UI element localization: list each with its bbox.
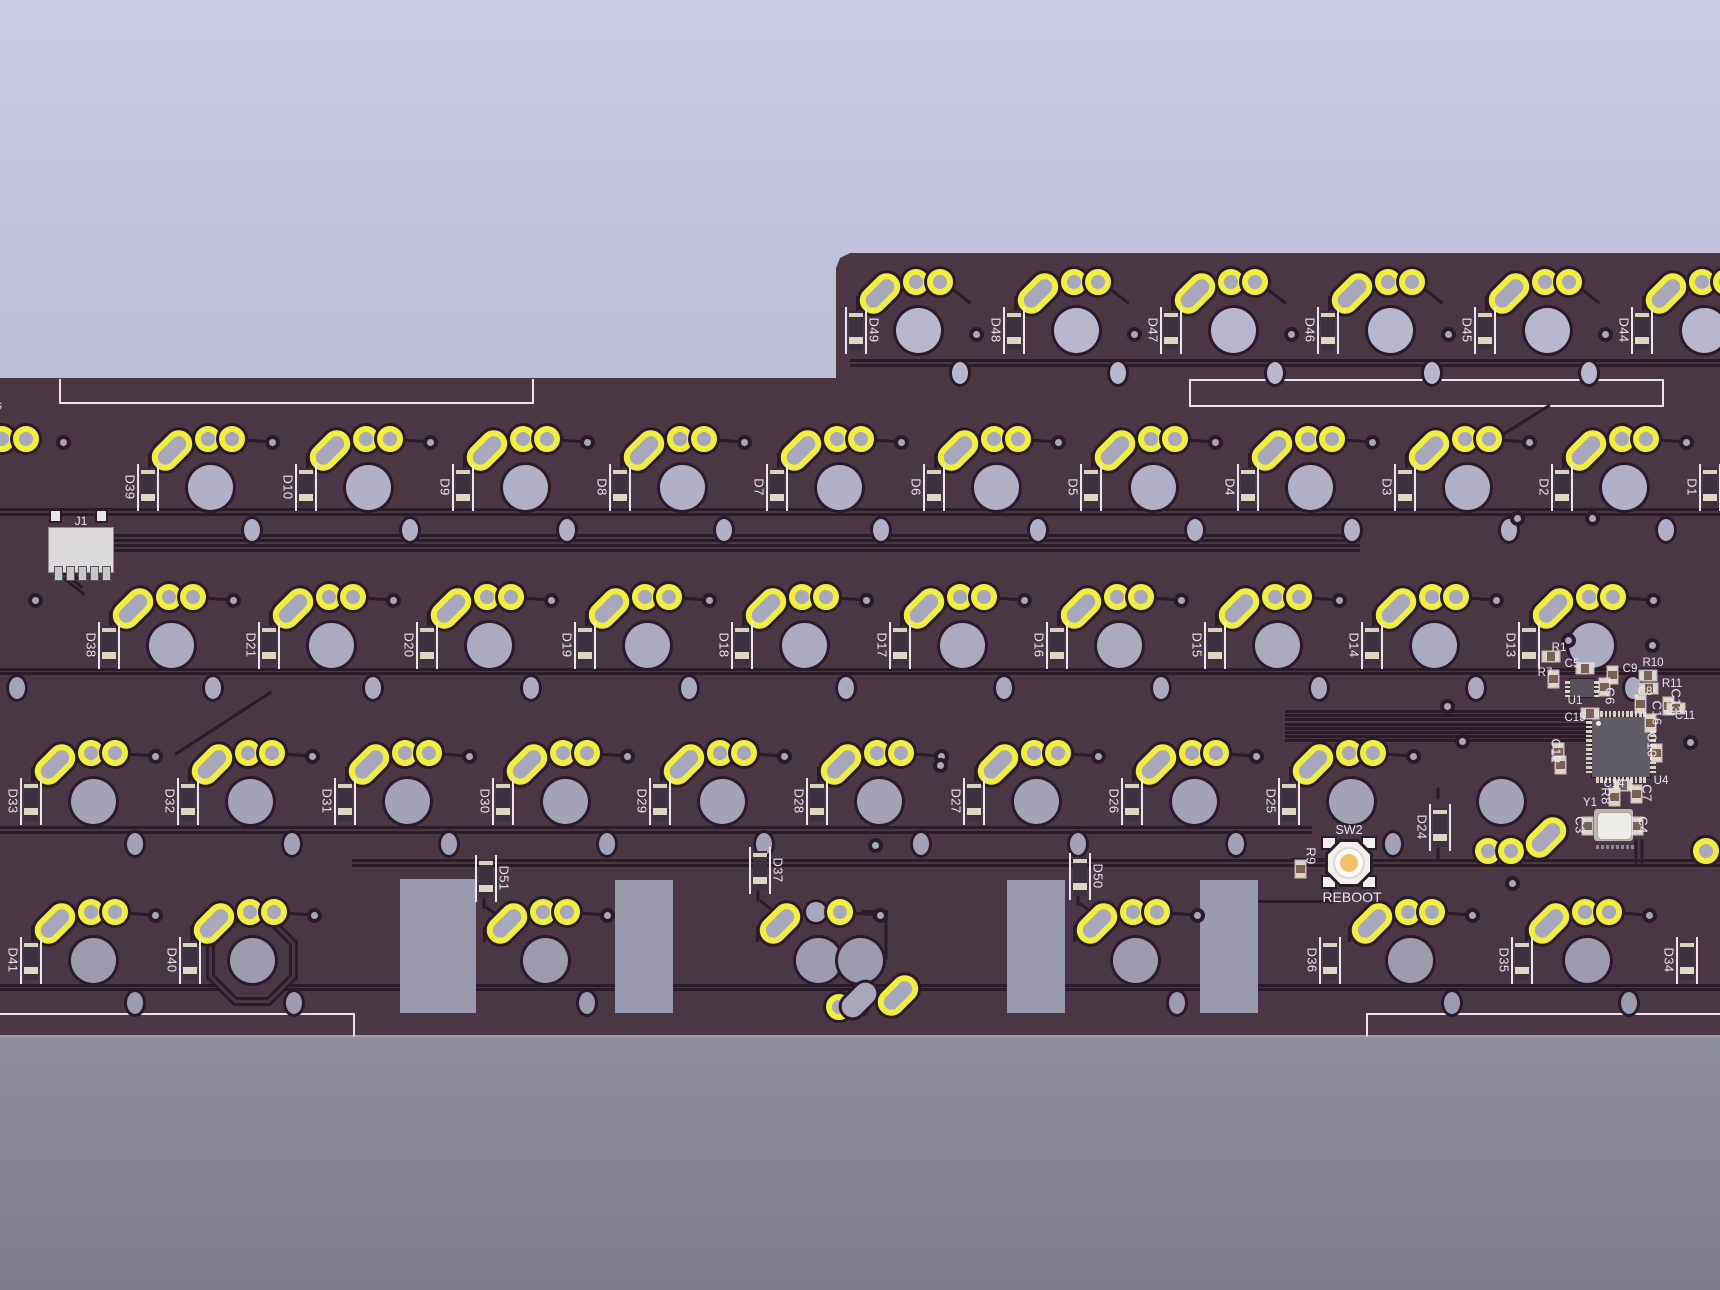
switch-pad (1713, 269, 1720, 295)
diode-D10-label: D10 (281, 474, 296, 499)
key-D45-hole[interactable] (1525, 308, 1570, 353)
via (781, 753, 788, 760)
board-cutout (1007, 880, 1065, 1013)
diode-D32-label: D32 (163, 788, 178, 813)
diode-D45-label: D45 (1460, 317, 1475, 342)
board-cutout (615, 880, 673, 1013)
switch-pad (1572, 899, 1598, 925)
diode-D49-label: D49 (867, 317, 882, 342)
diode-D48-body (1007, 311, 1021, 350)
switch-pad (1085, 269, 1111, 295)
switch-slot-pad (1520, 812, 1572, 864)
diode-D10-body (299, 468, 313, 507)
via (311, 912, 318, 919)
switch-pad (574, 740, 600, 766)
switch-pad (530, 899, 556, 925)
small-hole (441, 833, 457, 855)
switch-pad (707, 740, 733, 766)
switch-pad (1021, 740, 1047, 766)
copper-trace (85, 544, 1360, 547)
key-D33-hole[interactable] (71, 779, 116, 824)
diode-D27-body (967, 782, 981, 821)
switch-pad (416, 740, 442, 766)
key-D2-hole[interactable] (1602, 465, 1647, 510)
via (1459, 738, 1466, 745)
via (1178, 597, 1185, 604)
via (152, 912, 159, 919)
u4-pin (1630, 711, 1633, 717)
copper-trace (1285, 723, 1590, 726)
switch-pad (78, 899, 104, 925)
refdes-C4: C4 (1636, 816, 1651, 833)
key-D44-hole[interactable] (1682, 308, 1720, 353)
via (309, 753, 316, 760)
switch-pad (1419, 899, 1445, 925)
small-hole (1344, 519, 1360, 541)
key-D48-hole[interactable] (1054, 308, 1099, 353)
switch-pad (13, 426, 39, 452)
small-hole (402, 519, 418, 541)
via (1469, 912, 1476, 919)
small-hole (1581, 362, 1597, 384)
switch-pad (1395, 899, 1421, 925)
u4-pin (1586, 771, 1592, 774)
via (466, 753, 473, 760)
key-D14-hole[interactable] (1412, 623, 1457, 668)
diode-D45-body (1478, 311, 1492, 350)
j1-pin (102, 566, 111, 581)
diode-D29-label: D29 (635, 788, 650, 813)
u4-pin (1586, 735, 1592, 738)
diode-D39-label: D39 (123, 474, 138, 499)
via (1650, 597, 1657, 604)
j1-label: J1 (75, 514, 88, 528)
small-hole (244, 519, 260, 541)
via (1683, 439, 1690, 446)
small-hole (1169, 992, 1185, 1014)
diode-D30-label: D30 (478, 788, 493, 813)
diode-D36-body (1323, 941, 1337, 980)
small-hole (286, 992, 302, 1014)
key-D5-hole[interactable] (1131, 465, 1176, 510)
crystal-pad-dot (1611, 845, 1614, 849)
key-D39-hole[interactable] (188, 465, 233, 510)
switch-pad (1689, 269, 1715, 295)
copper-trace (1437, 788, 1440, 800)
switch-pad (1203, 740, 1229, 766)
key-D8-hole[interactable] (660, 465, 705, 510)
diode-D15-body (1208, 626, 1222, 665)
key-D19-hole[interactable] (625, 623, 670, 668)
diode-D7-label: D7 (752, 478, 767, 495)
diode-D17-label: D17 (875, 632, 890, 657)
switch-pad (1443, 584, 1469, 610)
via (1514, 515, 1521, 522)
via (863, 597, 870, 604)
switch-pad (498, 584, 524, 610)
switch-pad (1262, 584, 1288, 610)
via (1336, 597, 1343, 604)
switch-pad (632, 584, 658, 610)
copper-trace (1285, 731, 1590, 734)
refdes-C9: C9 (1623, 663, 1638, 675)
ic-u4-body[interactable] (1592, 717, 1650, 777)
key-D16-hole[interactable] (1097, 623, 1142, 668)
via (1526, 439, 1533, 446)
switch-pad (1005, 426, 1031, 452)
diode-D46-body (1321, 311, 1335, 350)
diode-D26-body (1125, 782, 1139, 821)
switch-pad (219, 426, 245, 452)
switch-pad (1045, 740, 1071, 766)
diode-D24-label: D24 (1415, 814, 1430, 839)
switch-pad (1218, 269, 1244, 295)
diode-D6-label: D6 (909, 478, 924, 495)
board-cutout (1200, 880, 1258, 1013)
small-hole (952, 362, 968, 384)
diode-D29-body (653, 782, 667, 821)
key-D10-hole[interactable] (346, 465, 391, 510)
u4-label: U4 (1654, 775, 1669, 787)
copper-trace (1285, 718, 1590, 721)
small-hole (127, 833, 143, 855)
switch-pad (789, 584, 815, 610)
small-hole (579, 992, 595, 1014)
switch-slot-pad (481, 898, 533, 950)
copper-trace (1285, 727, 1590, 730)
u1-label: U1 (1568, 695, 1583, 707)
copper-trace (352, 864, 1720, 867)
u1-pin (1565, 686, 1570, 689)
small-hole (913, 833, 929, 855)
key-D17-hole[interactable] (940, 623, 985, 668)
key-footprint-hole[interactable] (1113, 938, 1158, 983)
small-hole (1110, 362, 1126, 384)
via (1509, 880, 1516, 887)
key-D47-hole[interactable] (1211, 308, 1256, 353)
copper-trace (0, 831, 1312, 834)
small-hole (681, 677, 697, 699)
diode-D8-label: D8 (595, 478, 610, 495)
via (872, 842, 879, 849)
diode-D13-label: D13 (1504, 632, 1519, 657)
diode-D31-label: D31 (320, 788, 335, 813)
diode-D25-body (1282, 782, 1296, 821)
diode-D36-label: D36 (1305, 947, 1320, 972)
diode-D34-label: D34 (1662, 947, 1677, 972)
pcb-viewer-canvas[interactable]: D49D48D47D46D45D44D39D10D9D8D7D6D5D4D3D2… (0, 0, 1720, 1290)
diode-D4-label: D4 (1223, 478, 1238, 495)
refdes-C16: C16 (1650, 700, 1665, 725)
diode-D35-label: D35 (1497, 947, 1512, 972)
switch-pad (1295, 426, 1321, 452)
key-footprint-hole[interactable] (523, 938, 568, 983)
diode-D9-label: D9 (438, 478, 453, 495)
diode-D41-label: D41 (6, 947, 21, 972)
via (1589, 515, 1596, 522)
key-footprint-hole[interactable] (796, 938, 841, 983)
diode-D20-body (420, 626, 434, 665)
u4-pin (1586, 766, 1592, 769)
switch-slot-pad (1346, 898, 1398, 950)
diode-D38-body (102, 626, 116, 665)
diode-D28-label: D28 (792, 788, 807, 813)
small-hole (1153, 677, 1169, 699)
diode-D4-body (1241, 468, 1255, 507)
via (1649, 642, 1656, 649)
u4-pin (1596, 777, 1599, 783)
small-hole (1228, 833, 1244, 855)
switch-pad (353, 426, 379, 452)
silkscreen-rect (1189, 379, 1664, 407)
via (937, 762, 944, 769)
u1-pin (1565, 681, 1570, 684)
key-D35-hole[interactable] (1565, 938, 1610, 983)
y1-label: Y1 (1583, 797, 1597, 809)
diode-D49-body (849, 311, 863, 350)
switch-pad (156, 584, 182, 610)
diode-D14-label: D14 (1347, 632, 1362, 657)
key-D6-hole[interactable] (974, 465, 1019, 510)
diode-D44-label: D44 (1617, 317, 1632, 342)
via (1131, 331, 1138, 338)
diode-D27-label: D27 (949, 788, 964, 813)
u4-pin (1622, 711, 1625, 717)
diode-D47-body (1164, 311, 1178, 350)
via (60, 439, 67, 446)
diode-D39-body (141, 468, 155, 507)
small-hole (1385, 833, 1401, 855)
key-D32-hole[interactable] (228, 779, 273, 824)
key-footprint-hole[interactable] (838, 938, 883, 983)
diode-D33-label: D33 (6, 788, 21, 813)
refdes-R1: R1 (1552, 642, 1567, 654)
switch-pad (259, 740, 285, 766)
key-D18-hole[interactable] (782, 623, 827, 668)
passive-component[interactable] (1577, 664, 1593, 673)
crystal-pad-dot (1626, 845, 1629, 849)
via (877, 912, 884, 919)
switch-pad (971, 584, 997, 610)
diode-D50-body (1073, 857, 1087, 896)
switch-pad (392, 740, 418, 766)
via (1212, 439, 1219, 446)
passive-component[interactable] (1640, 671, 1656, 680)
u4-pin (1600, 777, 1603, 783)
via (548, 597, 555, 604)
refdes-C5: C5 (1565, 658, 1580, 670)
small-hole (559, 519, 575, 541)
via (1444, 703, 1451, 710)
diode-D30-body (496, 782, 510, 821)
refdes-C12: C12 (1549, 738, 1564, 763)
diode-D33-body (24, 782, 38, 821)
via (741, 439, 748, 446)
small-hole (873, 519, 889, 541)
small-hole (1311, 677, 1327, 699)
passive-component[interactable] (1608, 667, 1617, 683)
switch-pad (1600, 584, 1626, 610)
diode-D48-label: D48 (989, 317, 1004, 342)
diode-D3-label: D3 (1380, 478, 1395, 495)
refdes-C15: C15 (1564, 712, 1585, 724)
switch-pad (903, 269, 929, 295)
switch-slot-pad (872, 970, 924, 1022)
u4-pin (1586, 739, 1592, 742)
key-D49-hole[interactable] (896, 308, 941, 353)
switch-pad (1286, 584, 1312, 610)
key-D3-hole[interactable] (1445, 465, 1490, 510)
u1-pin (1594, 690, 1599, 693)
diode-D46-label: D46 (1303, 317, 1318, 342)
switch-pad (1242, 269, 1268, 295)
j1-pin (54, 566, 63, 581)
u4-pin (1650, 766, 1656, 769)
switch-pad (947, 584, 973, 610)
switch-pad (261, 899, 287, 925)
copper-trace (885, 916, 888, 960)
small-hole (1424, 362, 1440, 384)
switch-pad (1532, 269, 1558, 295)
u4-pin (1586, 753, 1592, 756)
u1-pin (1594, 695, 1599, 698)
small-hole (523, 677, 539, 699)
via (152, 753, 159, 760)
j1-pad (97, 511, 106, 521)
switch-pad (888, 740, 914, 766)
switch-pad (1498, 838, 1524, 864)
refdes-C11: C11 (1675, 710, 1695, 722)
diode-D16-body (1050, 626, 1064, 665)
switch-pad (827, 899, 853, 925)
via (1288, 331, 1295, 338)
u4-pin (1626, 711, 1629, 717)
diode-D51-label: D51 (497, 865, 512, 890)
key-D41-hole[interactable] (71, 938, 116, 983)
j1-pad (51, 511, 60, 521)
diode-D19-body (578, 626, 592, 665)
key-D38-hole[interactable] (149, 623, 194, 668)
j1-pin (66, 566, 75, 581)
u1-pin (1565, 690, 1570, 693)
u4-pin (1586, 744, 1592, 747)
copper-trace (0, 513, 1720, 516)
copper-trace (1641, 840, 1644, 864)
small-hole (284, 833, 300, 855)
switch-pad (813, 584, 839, 610)
switch-pad (1609, 426, 1635, 452)
key-D27-hole[interactable] (1014, 779, 1059, 824)
switch-pad (824, 426, 850, 452)
u4-pin (1605, 711, 1608, 717)
u4-pin (1586, 726, 1592, 729)
key-D46-hole[interactable] (1368, 308, 1413, 353)
small-hole (716, 519, 732, 541)
key-D4-hole[interactable] (1288, 465, 1333, 510)
diode-D15-label: D15 (1190, 632, 1205, 657)
via (973, 331, 980, 338)
via (390, 597, 397, 604)
copper-trace (85, 549, 1360, 552)
silkscreen-line (353, 1013, 355, 1037)
refdes-C7: C7 (1640, 784, 1655, 801)
diode-D14-body (1365, 626, 1379, 665)
u4-pin (1650, 762, 1656, 765)
switch-pad (1693, 838, 1719, 864)
small-hole (599, 833, 615, 855)
u4-pin (1609, 711, 1612, 717)
diode-D37-label: D37 (771, 857, 786, 882)
diode-D51-body (479, 859, 493, 898)
key-D26-hole[interactable] (1172, 779, 1217, 824)
diode-D21-body (262, 626, 276, 665)
small-hole (1468, 677, 1484, 699)
key-D7-hole[interactable] (817, 465, 862, 510)
u4-pin (1613, 711, 1616, 717)
diode-D5-label: D5 (1066, 478, 1081, 495)
via (604, 912, 611, 919)
refdes-C3: C3 (1573, 816, 1588, 833)
diode-D2-label: D2 (1537, 478, 1552, 495)
j1-pin (78, 566, 87, 581)
small-hole (1621, 992, 1637, 1014)
switch-pad (1128, 584, 1154, 610)
key-footprint-hole[interactable] (1479, 779, 1524, 824)
u4-pin (1586, 757, 1592, 760)
via (1021, 597, 1028, 604)
via (1410, 753, 1417, 760)
passive-component[interactable] (1636, 696, 1645, 712)
u4-pin1-dot (1596, 721, 1601, 726)
key-D25-hole[interactable] (1329, 779, 1374, 824)
sw2-plunger-center (1340, 854, 1358, 872)
key-D31-hole[interactable] (385, 779, 430, 824)
diode-D24-body (1433, 808, 1447, 847)
small-hole (838, 677, 854, 699)
diode-D21-label: D21 (244, 632, 259, 657)
key-D21-hole[interactable] (309, 623, 354, 668)
key-D30-hole[interactable] (543, 779, 588, 824)
via (1445, 331, 1452, 338)
u4-pin (1586, 730, 1592, 733)
key-D28-hole[interactable] (857, 779, 902, 824)
crystal-y1-body[interactable] (1597, 812, 1632, 840)
copper-trace (0, 672, 1720, 675)
switch-pad (1476, 426, 1502, 452)
switch-pad (981, 426, 1007, 452)
diode-D2-body (1555, 468, 1569, 507)
via (1194, 912, 1201, 919)
key-D29-hole[interactable] (700, 779, 745, 824)
u4-pin (1618, 711, 1621, 717)
key-D36-hole[interactable] (1388, 938, 1433, 983)
diode-D1-label: D1 (1685, 478, 1700, 495)
key-D20-hole[interactable] (467, 623, 512, 668)
refdes-R10: R10 (1642, 657, 1663, 669)
refdes-R7: R7 (1538, 667, 1553, 679)
switch-pad (1375, 269, 1401, 295)
switch-pad (1360, 740, 1386, 766)
diode-D19-label: D19 (560, 632, 575, 657)
switch-pad (1179, 740, 1205, 766)
key-D40-hole[interactable] (230, 938, 275, 983)
pcb-board[interactable]: D49D48D47D46D45D44D39D10D9D8D7D6D5D4D3D2… (0, 0, 1720, 1290)
diode-D32-body (181, 782, 195, 821)
key-D15-hole[interactable] (1255, 623, 1300, 668)
diode-D13-body (1522, 626, 1536, 665)
diode-D31-body (338, 782, 352, 821)
key-D9-hole[interactable] (503, 465, 548, 510)
